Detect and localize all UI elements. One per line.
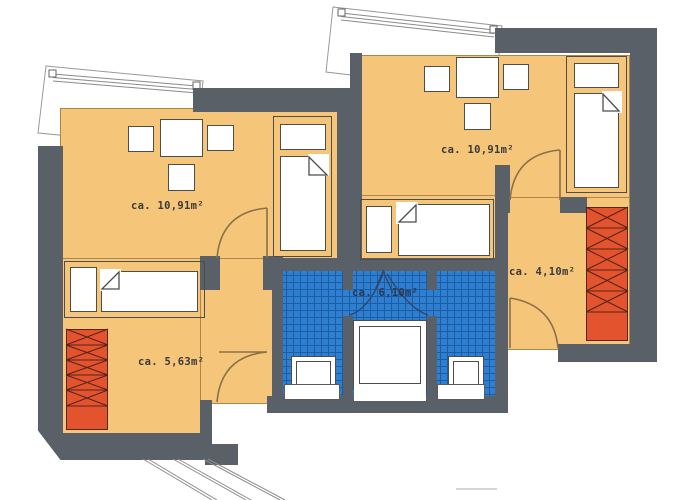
floor-plan-canvas: ca. 10,91m² ca. 10,91m² ca. 5,63m² ca. 4… xyxy=(0,0,700,500)
area-label-bathroom: ca. 6,10m² xyxy=(352,287,418,299)
door-arc-bedroom-left xyxy=(217,208,267,258)
area-label-hall-left: ca. 5,63m² xyxy=(138,356,204,368)
line-layer xyxy=(0,0,700,500)
area-label-hall-right: ca. 4,10m² xyxy=(509,266,575,278)
wall-chamfer xyxy=(36,428,62,462)
wardrobe-right-hatch xyxy=(586,207,628,312)
door-arc-entry-right xyxy=(510,298,558,348)
exterior-stairs xyxy=(143,459,285,500)
door-arc-entry-left xyxy=(217,352,267,402)
area-label-bedroom-right: ca. 10,91m² xyxy=(441,144,514,156)
wardrobe-left-hatch xyxy=(66,329,108,406)
door-arc-bedroom-right xyxy=(510,150,560,200)
area-label-bedroom-left: ca. 10,91m² xyxy=(131,200,204,212)
